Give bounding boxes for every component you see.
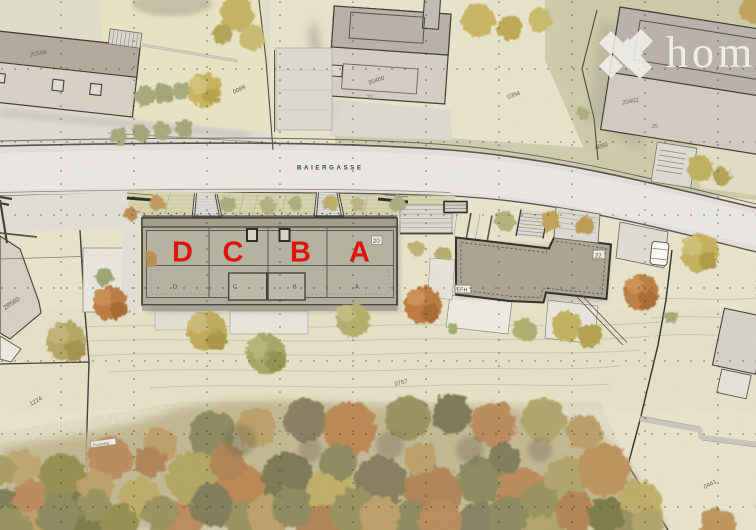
svg-text:hom: hom <box>666 28 756 77</box>
